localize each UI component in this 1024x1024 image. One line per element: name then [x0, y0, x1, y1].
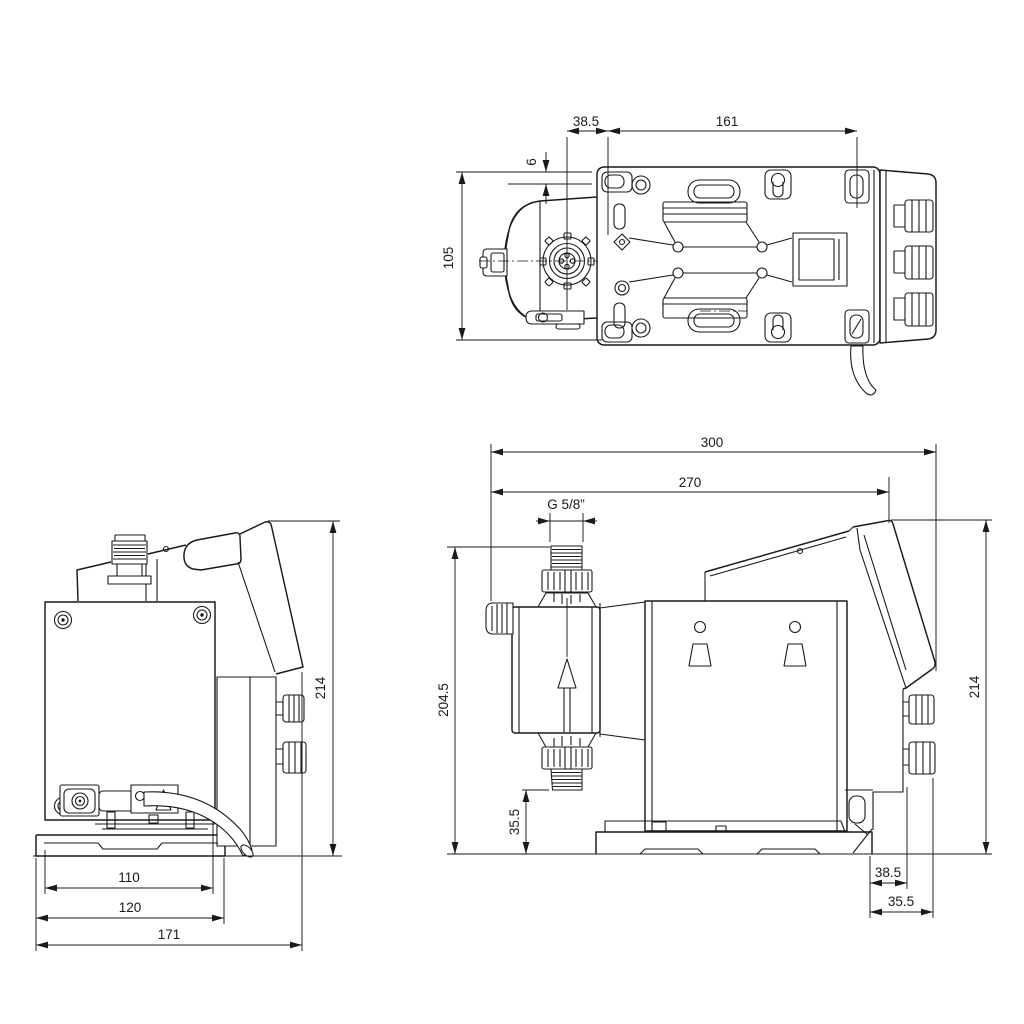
dim-label-105: 105: [441, 247, 456, 270]
dim-label-214-rear: 214: [313, 676, 328, 699]
dim-label-35-5-outlet: 35.5: [507, 809, 522, 835]
dim-label-120: 120: [119, 900, 142, 915]
side-view: 300 270 G 5/8” 204.5 35.5 214 38.5 35.5: [436, 435, 992, 918]
rear-base-plate: [36, 835, 225, 856]
pump-body-side: [600, 601, 847, 831]
mounting-plate: [597, 167, 880, 345]
dim-label-161: 161: [716, 114, 739, 129]
union-nut-bottom: [542, 747, 592, 769]
rear-bracket: [845, 790, 873, 835]
vent-valve-knob: [486, 603, 513, 634]
union-nut-top: [542, 570, 592, 592]
dim-label-214-side: 214: [967, 675, 982, 698]
dim-label-6: 6: [524, 158, 539, 166]
dim-label-38-5-side: 38.5: [875, 865, 901, 880]
power-cable-top: [851, 346, 876, 395]
outlet-thread: [551, 769, 582, 790]
dim-label-300: 300: [701, 435, 724, 450]
dim-label-171: 171: [158, 927, 181, 942]
top-view: 38.5 161 6 105: [441, 114, 936, 395]
mounting-latch: [526, 311, 584, 329]
control-panel-top: [880, 170, 936, 343]
dim-label-270: 270: [679, 475, 702, 490]
pump-dimensional-drawing: 38.5 161 6 105: [0, 0, 1024, 1024]
rear-knob-1: [276, 695, 304, 722]
side-base-plate: [596, 821, 872, 854]
rear-view: 214 110 120 171: [33, 521, 342, 951]
hmi-panel-side: [705, 520, 935, 835]
side-knob-1: [903, 695, 934, 724]
inlet-thread: [551, 546, 582, 570]
wall-mount-keyhole-1: [689, 622, 711, 667]
wall-mount-keyhole-2: [784, 622, 806, 667]
dim-label-35-5-side: 35.5: [888, 894, 914, 909]
dim-label-204-5: 204.5: [436, 683, 451, 717]
rear-thread-fitting: [108, 535, 151, 584]
gland-knob-1: [894, 200, 933, 232]
dosing-head: [486, 546, 600, 790]
drawing-page: 38.5 161 6 105: [0, 0, 1024, 1024]
side-knob-2: [903, 742, 935, 774]
thread-size-label: G 5/8”: [547, 497, 585, 512]
dim-label-38-5-top: 38.5: [573, 114, 599, 129]
dim-label-110: 110: [118, 870, 140, 885]
rear-knob-2: [276, 742, 306, 773]
